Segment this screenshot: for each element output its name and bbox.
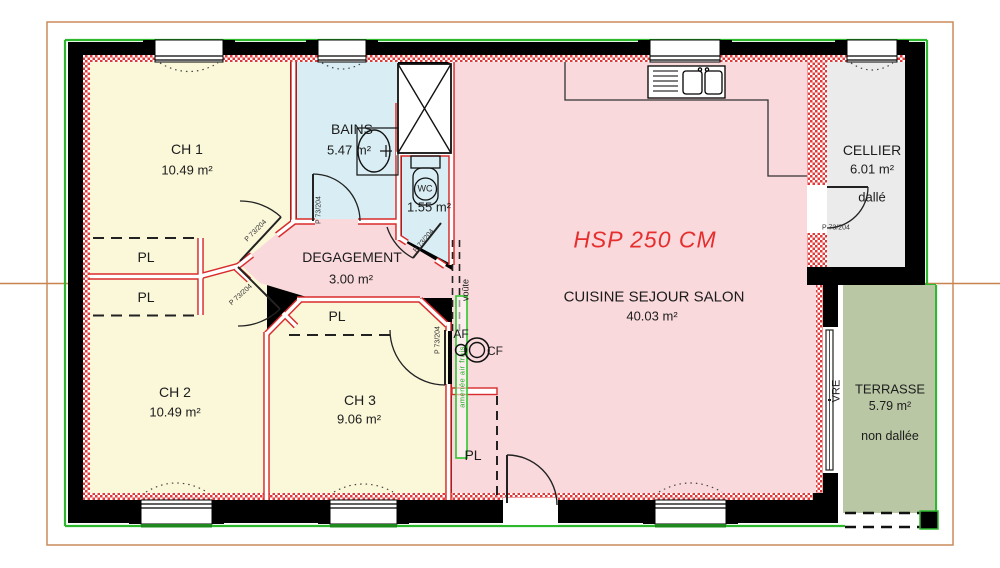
ch1-name: CH 1 xyxy=(171,142,203,156)
bains-area: 5.47 m² xyxy=(327,144,371,157)
closet-ch3-label: PL xyxy=(328,309,345,323)
terrasse-note: non dallée xyxy=(861,430,919,443)
wc-fixture-label: WC xyxy=(418,185,433,194)
door-tag-ch3: P 73/204 xyxy=(435,326,442,354)
shower xyxy=(398,64,451,153)
window-kitchen xyxy=(638,40,732,62)
terrasse-open-edge xyxy=(845,511,938,529)
voute-label: voûte xyxy=(462,279,471,301)
cellier-note: dallé xyxy=(858,191,885,204)
floor-plan-drawing xyxy=(0,0,1000,568)
ch2-name: CH 2 xyxy=(159,385,191,399)
ch3-name: CH 3 xyxy=(344,393,376,407)
closet-entry-label: PL xyxy=(464,448,481,462)
vre-label: VRE xyxy=(832,380,843,403)
door-tag-bains: P 73/204 xyxy=(316,196,323,224)
terrasse-area: 5.79 m² xyxy=(869,400,911,413)
terrasse-name: TERRASSE xyxy=(855,383,925,396)
ceiling-height-label: HSP 250 CM xyxy=(573,229,716,252)
wc-area: 1.55 m² xyxy=(407,201,451,214)
cellier-name: CELLIER xyxy=(843,143,901,157)
closet-ch2-label: PL xyxy=(137,290,154,304)
room-cuisine-sejour xyxy=(452,62,816,493)
degagement-area: 3.00 m² xyxy=(329,273,373,286)
door-tag-cellier: P 73/204 xyxy=(822,225,850,232)
ch1-area: 10.49 m² xyxy=(161,164,212,177)
closet-ch1-label: PL xyxy=(137,250,154,264)
floor-plan: CH 1 10.49 m² BAINS 5.47 m² 1.55 m² WC D… xyxy=(0,0,1000,568)
cellier-area: 6.01 m² xyxy=(850,163,894,176)
ch2-area: 10.49 m² xyxy=(149,406,200,419)
ch3-area: 9.06 m² xyxy=(337,413,381,426)
af-cf-symbols xyxy=(446,330,506,370)
sink xyxy=(648,66,725,98)
degagement-name: DEGAGEMENT xyxy=(302,250,402,264)
cuisine-name: CUISINE SEJOUR SALON xyxy=(564,290,745,305)
cellier-south-wall xyxy=(807,267,925,285)
cuisine-area: 40.03 m² xyxy=(626,310,677,323)
bains-name: BAINS xyxy=(331,122,373,136)
